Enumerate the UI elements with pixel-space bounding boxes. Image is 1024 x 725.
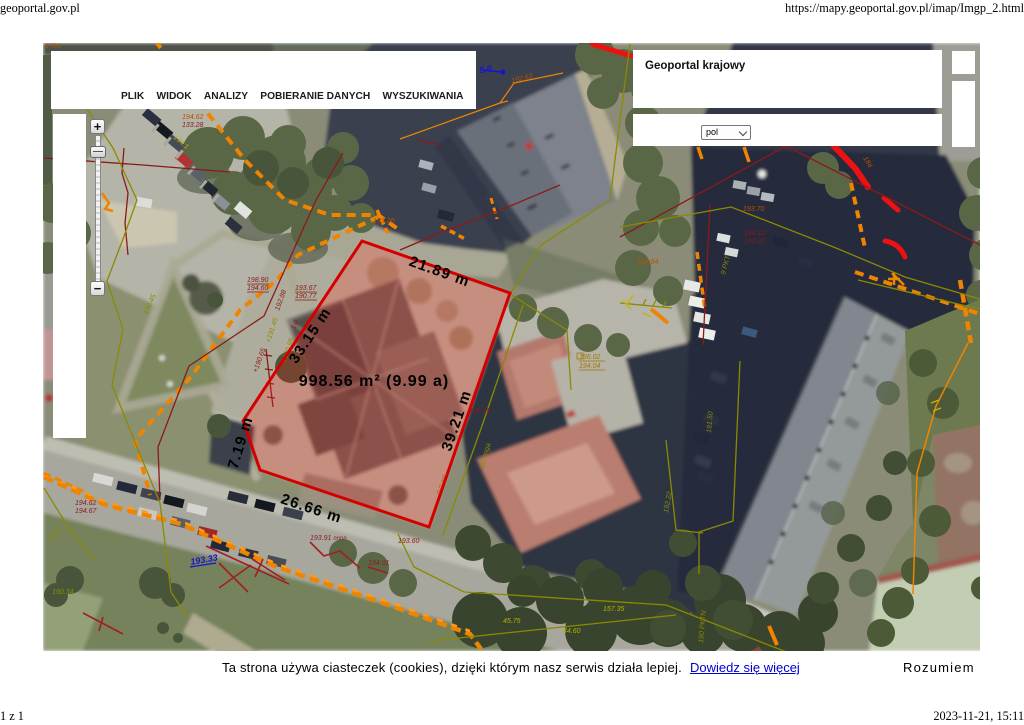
svg-text:998.56 m² (9.99 a): 998.56 m² (9.99 a) [299, 373, 450, 390]
svg-text:157.35: 157.35 [603, 606, 625, 613]
svg-text:196.02: 196.02 [579, 354, 601, 361]
svg-text:193.91 nnnn: 193.91 nnnn [310, 535, 347, 542]
svg-text:194.62: 194.62 [182, 114, 204, 121]
svg-text:190.32: 190.32 [744, 238, 766, 245]
svg-text:194.04: 194.04 [579, 363, 601, 370]
svg-text:178.2: 178.2 [45, 43, 62, 50]
svg-text:194.60: 194.60 [247, 285, 269, 292]
svg-text:194.01: 194.01 [368, 560, 390, 567]
svg-text:193.70: 193.70 [743, 206, 765, 213]
svg-text:190.12: 190.12 [744, 230, 766, 237]
svg-text:193.20: 193.20 [373, 218, 395, 225]
svg-text:193.60: 193.60 [398, 538, 420, 545]
svg-text:190.77: 190.77 [295, 293, 318, 300]
svg-text:194.67: 194.67 [75, 508, 98, 515]
svg-text:193.67: 193.67 [295, 285, 318, 292]
svg-text:194.62: 194.62 [75, 500, 97, 507]
svg-text:44.60: 44.60 [563, 628, 581, 635]
svg-text:190.34: 190.34 [52, 589, 74, 596]
svg-text:133.28: 133.28 [182, 122, 204, 129]
svg-text:194.84: 194.84 [637, 259, 659, 266]
svg-text:5.0: 5.0 [479, 63, 493, 75]
svg-text:198.90: 198.90 [247, 277, 269, 284]
svg-text:195.15: 195.15 [469, 408, 491, 415]
svg-text:45.75: 45.75 [503, 618, 521, 625]
